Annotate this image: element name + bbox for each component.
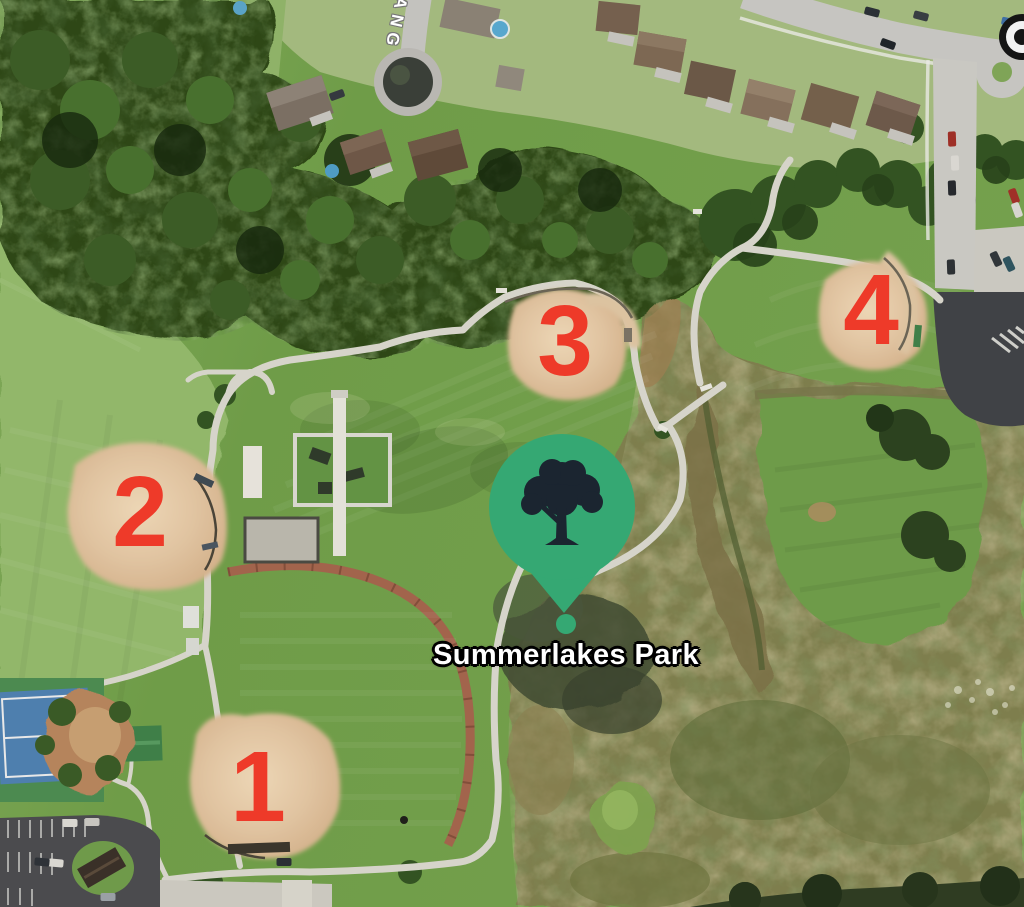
camera-center-dot — [1014, 29, 1024, 45]
park-name-label: Summerlakes Park — [433, 640, 699, 672]
pin-anchor-dot — [556, 614, 576, 634]
speed-camera-icon[interactable] — [999, 14, 1024, 60]
cul-de-sac — [374, 48, 442, 116]
field-marker-3: 3 — [537, 291, 593, 391]
field-marker-1: 1 — [230, 737, 286, 837]
field-marker-2: 2 — [112, 462, 168, 562]
map-viewport[interactable]: 1 2 3 4 Summerlakes Park ANG — [0, 0, 1024, 907]
park-marker-pin[interactable] — [470, 420, 660, 640]
field-marker-4: 4 — [843, 260, 899, 360]
